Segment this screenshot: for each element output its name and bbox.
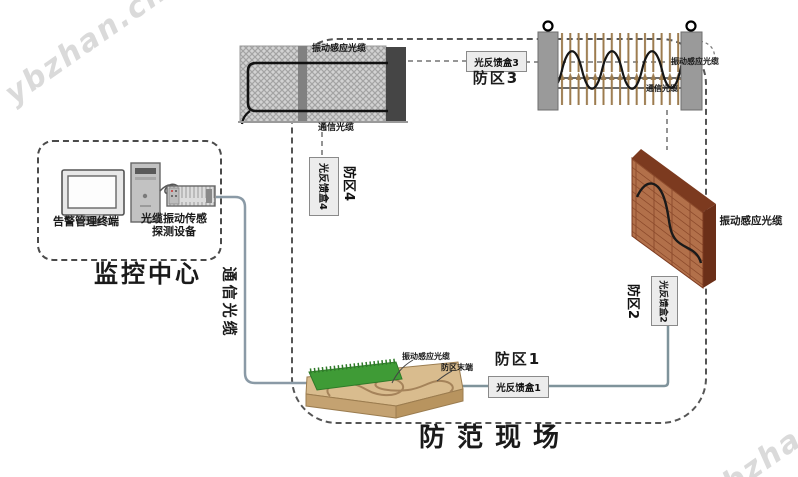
zone-end-label: 防区末端 [436, 363, 478, 372]
device-label: 光缆振动传感 探测设备 [126, 213, 222, 238]
sensing-device-icon [167, 186, 215, 206]
right-fence-comm-label: 通信光缆 [644, 84, 680, 93]
wall-sensing-label: 振动感应光缆 [715, 215, 787, 227]
right-fence-sensing-label: 振动感应光缆 [671, 57, 719, 66]
ground-sensing-label: 振动感应光缆 [397, 352, 455, 361]
diagram-drawing [0, 0, 798, 477]
fence-end-post [386, 47, 406, 121]
feedback-box-2-label: 光反馈盒2 [658, 280, 671, 322]
feedback-box-3-label: 光反馈盒3 [474, 55, 519, 69]
feedback-box-1-label: 光反馈盒1 [496, 380, 541, 394]
top-fence-comm-label: 通信光缆 [313, 123, 359, 133]
feedback-box-1: 光反馈盒1 [488, 376, 549, 398]
fence-post-right [681, 32, 702, 110]
feedback-box-4: 光反馈盒4 [309, 157, 339, 216]
top-fence-sensing-label: 振动感应光缆 [306, 44, 372, 54]
zone-2-label: 防区2 [625, 280, 644, 322]
zone-4-label: 防区4 [341, 162, 361, 204]
brick-wall [632, 149, 716, 288]
fence-post-left [538, 32, 558, 110]
diagram-canvas: 告警管理终端 光缆振动传感 探测设备 监控中心 通信光缆 振动感应光缆 通信光缆… [0, 0, 798, 477]
zone-2-text: 防区2 [625, 283, 644, 318]
zone-4-text: 防区4 [342, 165, 361, 200]
monitoring-center-title: 监控中心 [88, 260, 208, 288]
feedback-box-2: 光反馈盒2 [651, 276, 678, 326]
zone-1-label: 防区1 [494, 351, 542, 368]
post-finial [687, 22, 696, 31]
device-label-line1: 光缆振动传感 [126, 213, 222, 226]
feedback-box-4-label: 光反馈盒4 [317, 163, 332, 210]
site-title: 防范现场 [395, 424, 595, 454]
chain-link-fence [238, 46, 408, 124]
zone-3-label: 防区3 [472, 70, 520, 87]
comm-cable-vertical-label: 通信光缆 [220, 262, 237, 344]
device-label-line2: 探测设备 [126, 226, 222, 239]
terminal-label: 告警管理终端 [42, 216, 130, 229]
post-finial [544, 22, 553, 31]
